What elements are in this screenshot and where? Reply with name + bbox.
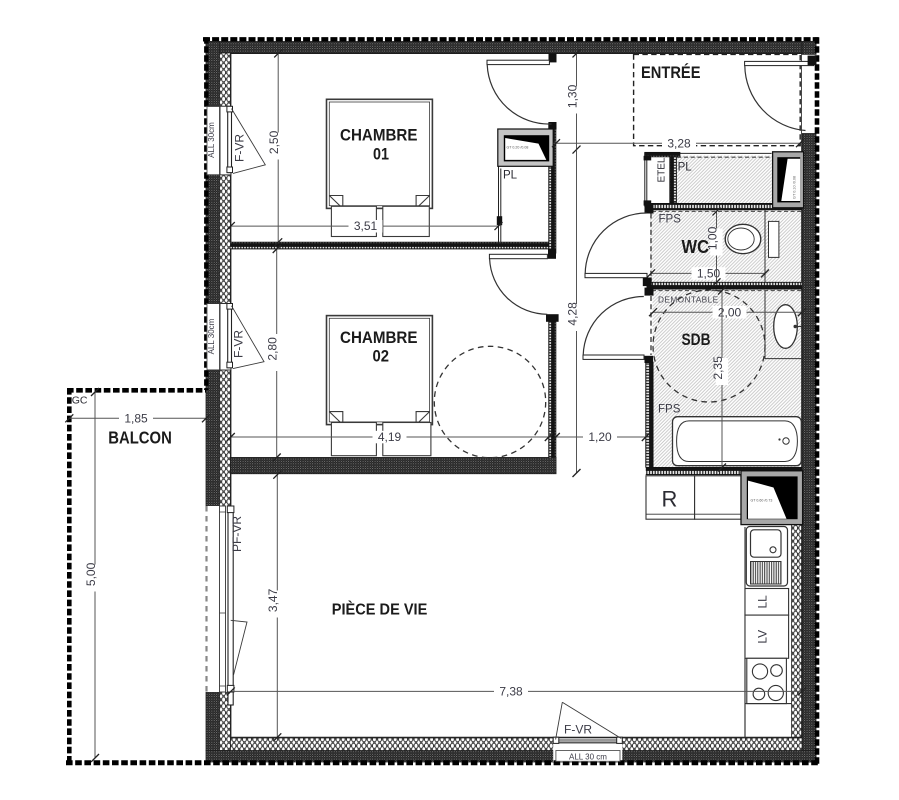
svg-text:ALL 30cm: ALL 30cm — [207, 122, 216, 158]
svg-text:F-VR: F-VR — [232, 330, 246, 358]
svg-text:02: 02 — [373, 347, 390, 366]
svg-text:R: R — [662, 487, 678, 512]
svg-text:7,38: 7,38 — [499, 685, 523, 699]
svg-text:SDB: SDB — [682, 330, 711, 349]
svg-text:GC: GC — [72, 395, 88, 407]
svg-text:ENTRÉE: ENTRÉE — [641, 63, 701, 82]
svg-text:3,28: 3,28 — [667, 136, 691, 150]
svg-text:ETEL: ETEL — [657, 157, 668, 182]
svg-text:01: 01 — [373, 144, 389, 163]
svg-text:3,51: 3,51 — [354, 219, 378, 233]
svg-text:2,80: 2,80 — [266, 337, 280, 361]
svg-text:1,00: 1,00 — [706, 226, 720, 250]
svg-text:4,19: 4,19 — [378, 430, 402, 444]
svg-text:GT 0.60 /0.73: GT 0.60 /0.73 — [751, 499, 773, 503]
svg-text:LV: LV — [756, 630, 770, 644]
svg-text:F-VR: F-VR — [564, 723, 592, 737]
svg-text:FPS: FPS — [658, 404, 681, 416]
svg-text:1,85: 1,85 — [124, 411, 148, 425]
svg-text:ALL 30cm: ALL 30cm — [207, 318, 216, 354]
svg-text:PL: PL — [678, 162, 693, 174]
svg-text:GT 0.10 /0.08: GT 0.10 /0.08 — [793, 176, 797, 199]
svg-text:2,00: 2,00 — [718, 305, 742, 319]
svg-text:PL: PL — [503, 170, 518, 182]
svg-text:DEMONTABLE: DEMONTABLE — [658, 294, 719, 304]
svg-text:3,47: 3,47 — [266, 588, 280, 612]
svg-text:PF-VR: PF-VR — [230, 516, 244, 552]
svg-text:1,30: 1,30 — [566, 84, 580, 108]
svg-text:CHAMBRE: CHAMBRE — [340, 328, 418, 347]
svg-text:2,50: 2,50 — [267, 130, 281, 154]
svg-text:4,28: 4,28 — [566, 302, 580, 326]
svg-text:LL: LL — [756, 595, 770, 609]
svg-text:CHAMBRE: CHAMBRE — [340, 125, 418, 144]
svg-text:ALL 30 cm: ALL 30 cm — [569, 752, 607, 761]
svg-text:5,00: 5,00 — [84, 562, 98, 586]
svg-text:2,35: 2,35 — [711, 356, 725, 380]
svg-text:GT 0.20 /0.08: GT 0.20 /0.08 — [507, 146, 529, 150]
svg-text:1,20: 1,20 — [588, 430, 612, 444]
svg-text:F-VR: F-VR — [233, 134, 247, 162]
svg-text:BALCON: BALCON — [108, 427, 172, 447]
svg-text:FPS: FPS — [659, 214, 682, 226]
svg-text:PIÈCE DE VIE: PIÈCE DE VIE — [332, 600, 428, 619]
